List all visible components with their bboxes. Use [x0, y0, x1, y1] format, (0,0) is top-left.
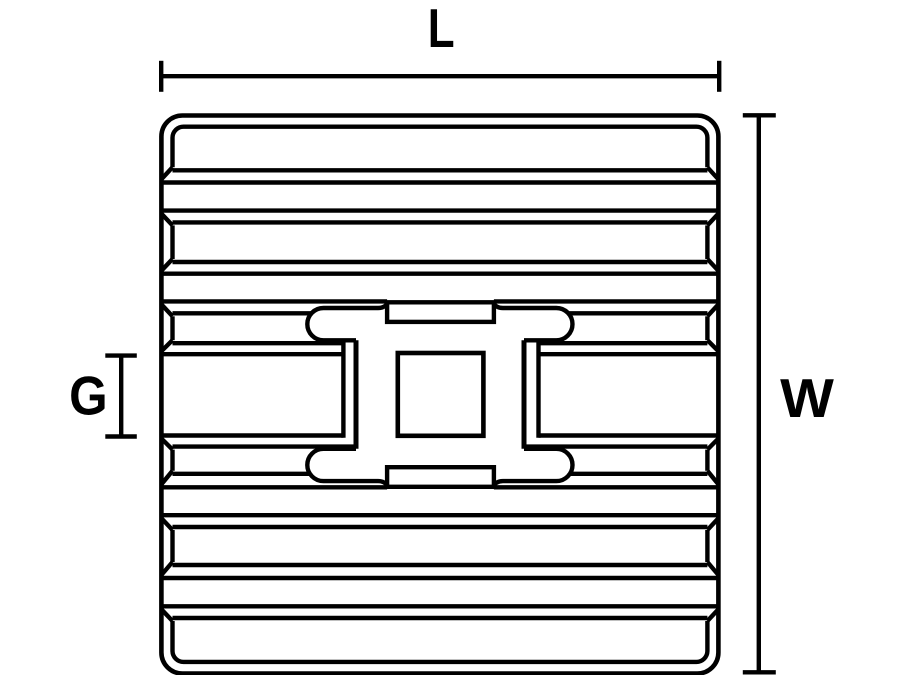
svg-text:L: L	[428, 0, 455, 59]
svg-text:G: G	[69, 366, 108, 427]
svg-text:W: W	[780, 367, 834, 429]
